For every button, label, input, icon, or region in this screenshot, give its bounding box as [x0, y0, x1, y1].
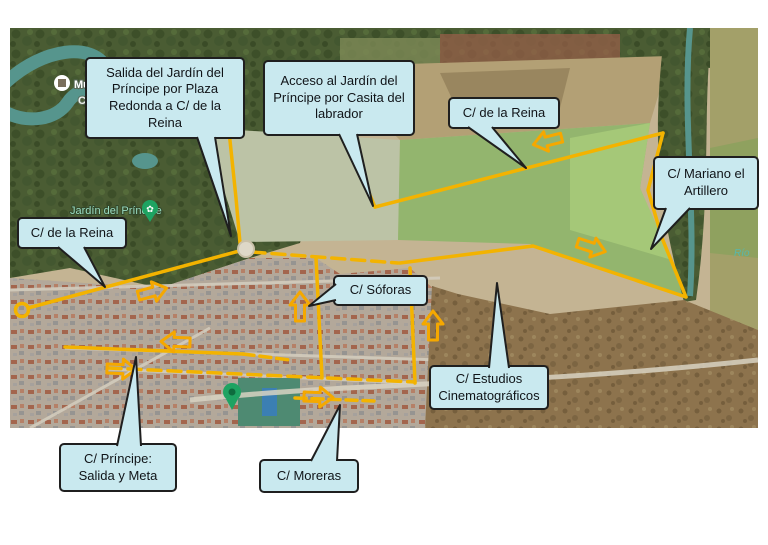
callout-salida-jardin-text: Salida del Jardín del Príncipe por Plaza… [92, 65, 238, 132]
callout-mariano-artillero-text: C/ Mariano el Artillero [660, 166, 752, 199]
callout-reina-left-text: C/ de la Reina [31, 225, 113, 242]
rio-label: Río [734, 248, 750, 259]
callout-estudios: C/ Estudios Cinematográficos [429, 365, 549, 410]
svg-text:✿: ✿ [146, 204, 154, 214]
callout-reina-top-text: C/ de la Reina [463, 105, 545, 122]
callout-estudios-text: C/ Estudios Cinematográficos [436, 371, 542, 404]
plaza-redonda-roundabout [238, 241, 254, 257]
callout-acceso-jardin: Acceso al Jardín del Príncipe por Casita… [263, 60, 415, 136]
callout-soforas-text: C/ Sóforas [350, 282, 411, 299]
callout-mariano-artillero: C/ Mariano el Artillero [653, 156, 759, 210]
callout-acceso-jardin-text: Acceso al Jardín del Príncipe por Casita… [270, 73, 408, 123]
callout-moreras-text: C/ Moreras [277, 468, 341, 485]
callout-principe-salida-meta: C/ Príncipe: Salida y Meta [59, 443, 177, 492]
route-map-figure: Museo Cen Jardín del Príncipe ✿ Río Sali… [0, 0, 768, 545]
callout-salida-jardin: Salida del Jardín del Príncipe por Plaza… [85, 57, 245, 139]
callout-moreras: C/ Moreras [259, 459, 359, 493]
callout-reina-left: C/ de la Reina [17, 217, 127, 249]
callout-soforas: C/ Sóforas [333, 275, 428, 306]
callout-reina-top: C/ de la Reina [448, 97, 560, 129]
callout-principe-salida-meta-text: C/ Príncipe: Salida y Meta [66, 451, 170, 484]
